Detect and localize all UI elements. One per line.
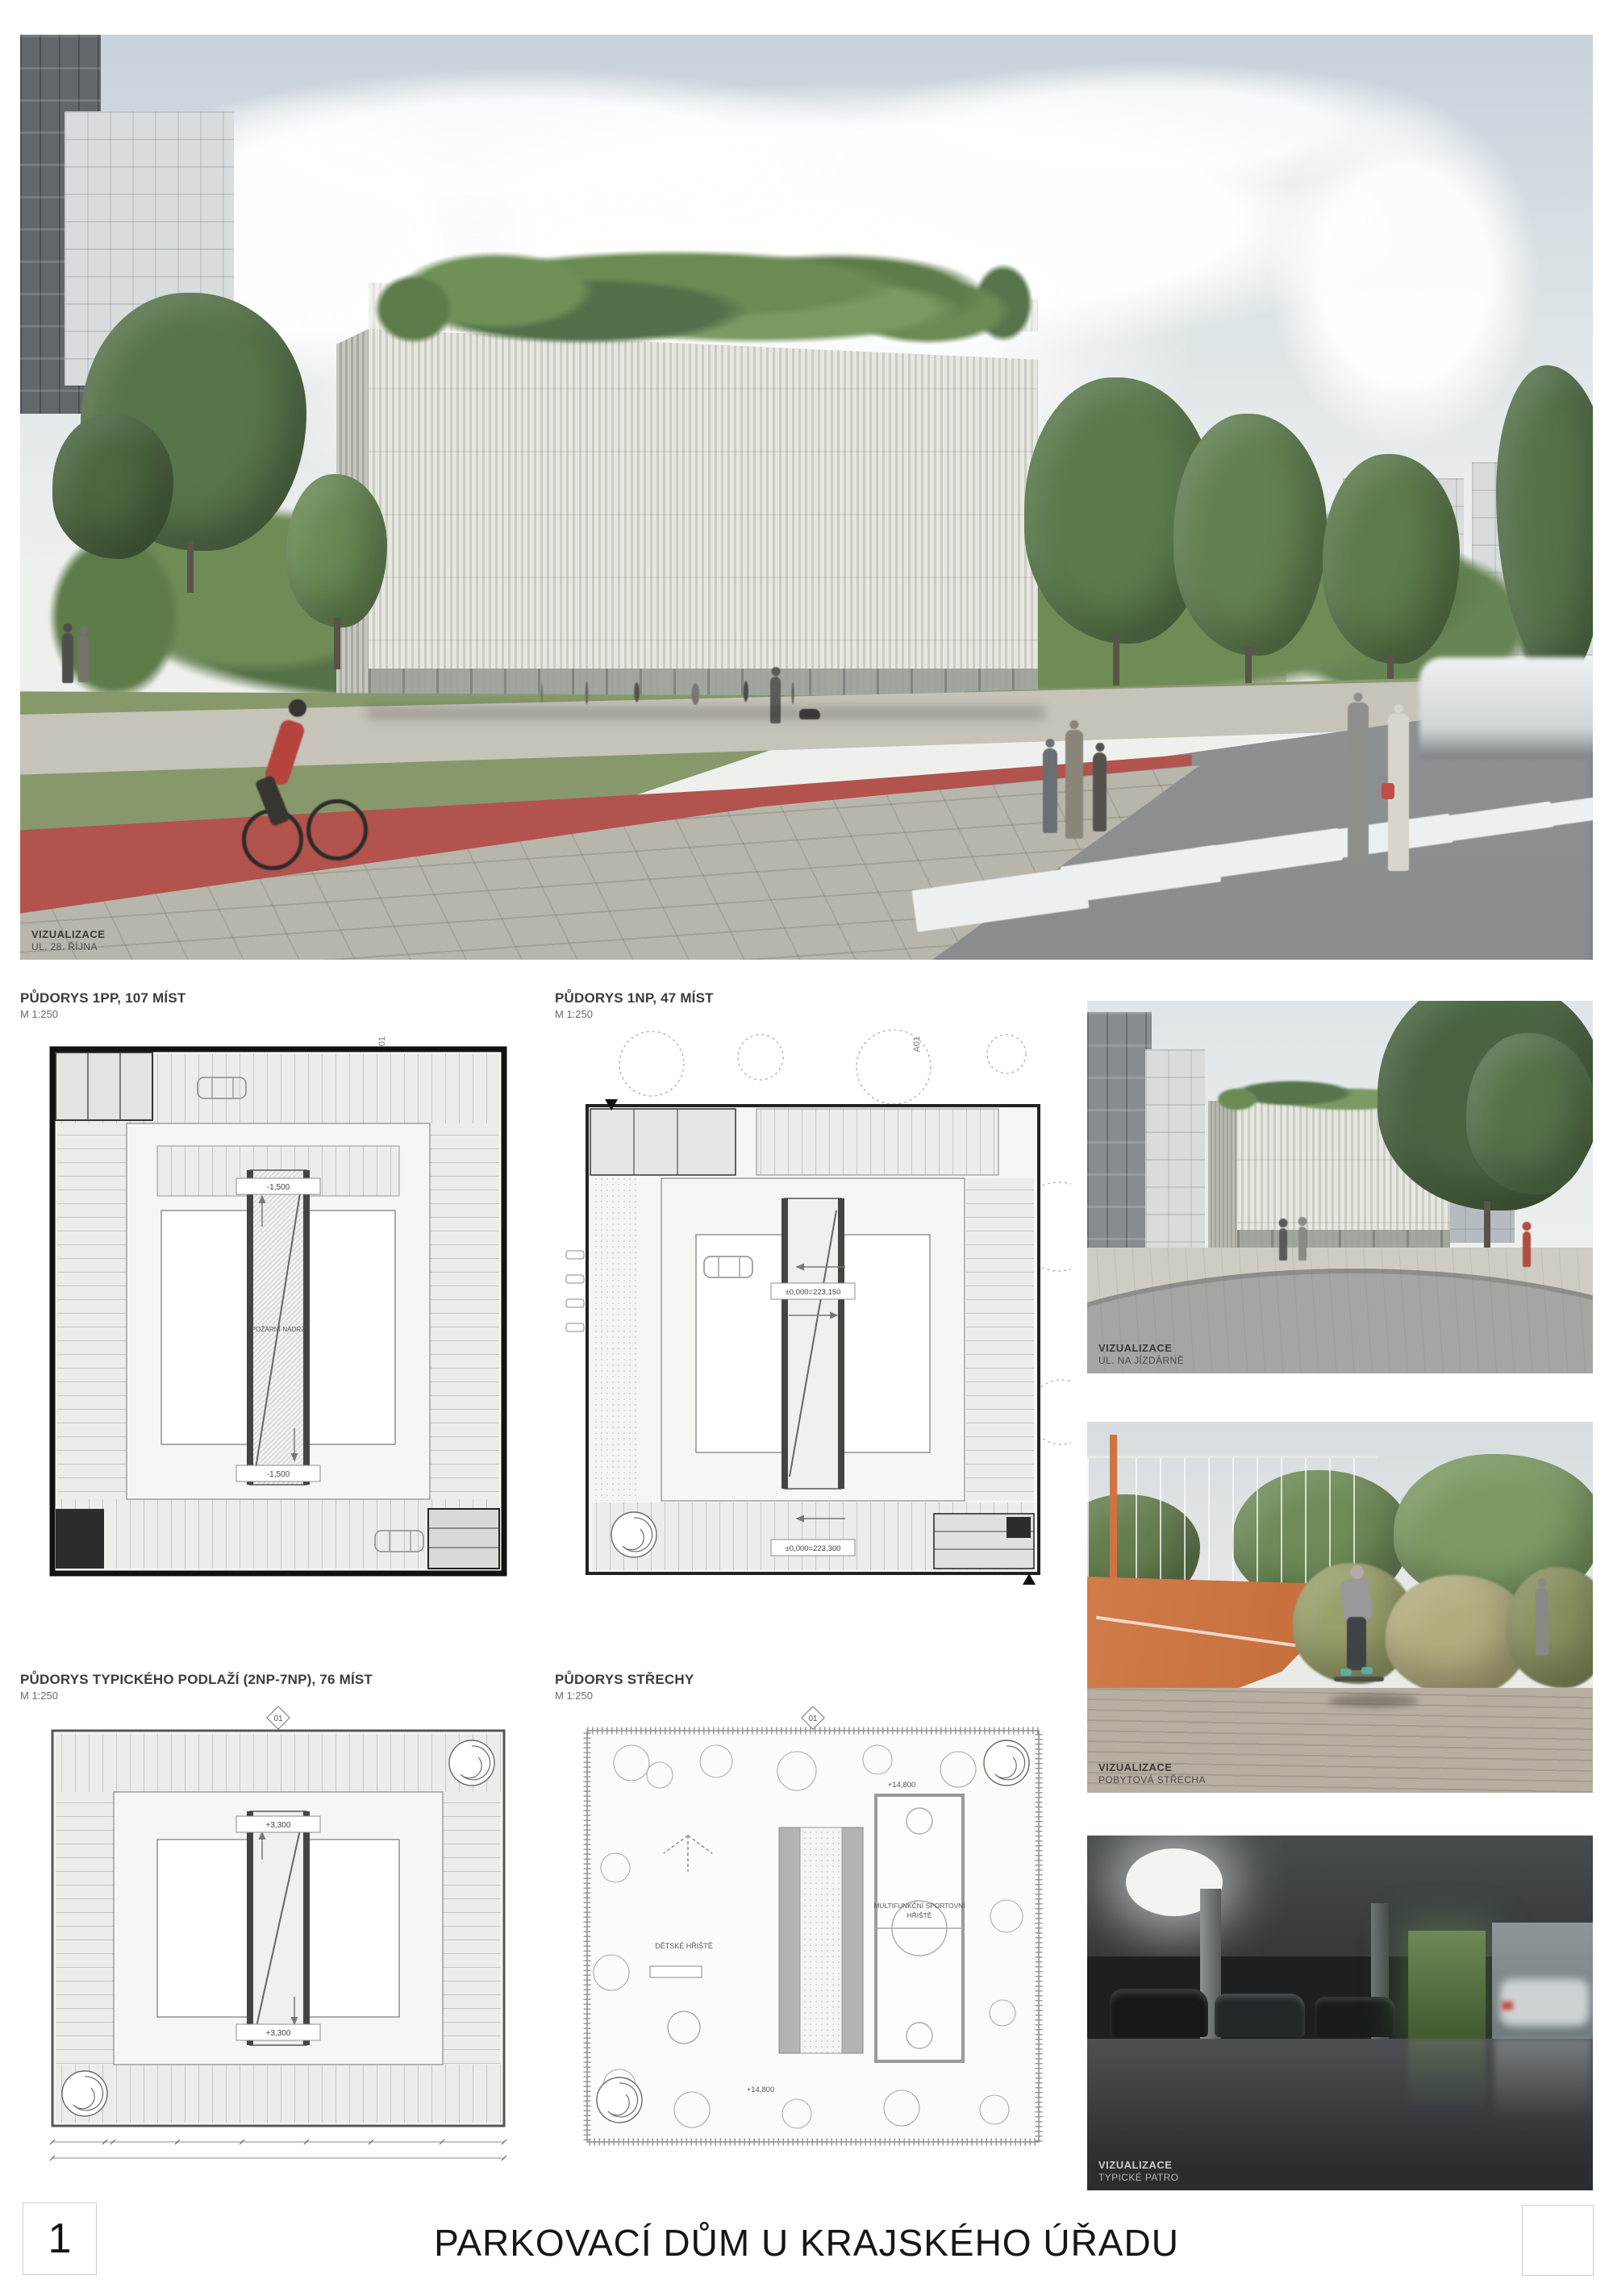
- tree: [1173, 414, 1327, 656]
- svg-text:±0,000=223,300: ±0,000=223,300: [786, 1544, 841, 1553]
- svg-text:+3,300: +3,300: [266, 1821, 291, 1830]
- plan-scale: M 1:250: [20, 1008, 536, 1020]
- cyclist: [226, 688, 363, 890]
- ramp-core: [781, 1198, 844, 1489]
- plan-typical-floor: PŮDORYS TYPICKÉHO PODLAŽÍ (2NP-7NP), 76 …: [20, 1672, 536, 2196]
- background-building: [1087, 1012, 1152, 1254]
- spiral-ramp: [62, 2071, 107, 2116]
- floor-reflection-green: [1408, 2039, 1486, 2111]
- sports-court: MULTIFUNKČNÍ SPORTOVNÍ HŘIŠTĚ: [873, 1795, 965, 2061]
- svg-text:01: 01: [273, 1715, 283, 1723]
- viz-caption: VIZUALIZACE UL. NA JÍZDÁRNĚ: [1098, 1342, 1184, 1367]
- presentation-board: VIZUALIZACE UL. 28. ŘÍJNA PŮDORYS 1PP, 1…: [0, 15, 1613, 2296]
- pedestrian: [1065, 730, 1083, 839]
- section-marker: 01: [267, 1706, 290, 1729]
- visualization-interior: VIZUALIZACE TYPICKÉ PATRO: [1087, 1836, 1593, 2190]
- plan-title: PŮDORYS STŘECHY: [555, 1672, 1071, 1688]
- level-label-bottom: +14,800: [747, 2086, 775, 2094]
- tree: [1466, 1033, 1593, 1194]
- dimension-line: [50, 2140, 506, 2161]
- context-bike-racks: [566, 1251, 584, 1331]
- stair-rooms: [934, 1514, 1034, 1569]
- hero-visualization: VIZUALIZACE UL. 28. ŘÍJNA: [20, 35, 1593, 960]
- plan-drawing-typical: 01 +3,300: [20, 1706, 536, 2168]
- parking-house-building: [336, 325, 1038, 710]
- board-title: PARKOVACÍ DŮM U KRAJSKÉHO ÚŘADU: [0, 2221, 1613, 2265]
- entrance-rooms: [590, 1109, 998, 1175]
- playground-label: DĚTSKÉ HŘIŠTĚ: [655, 1942, 713, 1950]
- svg-text:+3,300: +3,300: [266, 2029, 291, 2038]
- caption-label: VIZUALIZACE: [31, 928, 105, 941]
- viz-caption: VIZUALIZACE TYPICKÉ PATRO: [1098, 2159, 1178, 2184]
- spiral-ramp: [984, 1740, 1029, 1786]
- entrance-people: [536, 669, 811, 710]
- ramp-core: [247, 1811, 310, 2045]
- car-blurred: [1419, 657, 1593, 758]
- background-building: [1145, 1049, 1205, 1252]
- level-marker-bottom: +3,300: [236, 2024, 320, 2040]
- moving-car-blur: [1500, 1979, 1589, 2026]
- tree: [286, 474, 387, 627]
- caption-location: UL. 28. ŘÍJNA: [31, 941, 105, 953]
- level-label-top: +14,800: [888, 1781, 916, 1790]
- pedestrian-child: [1043, 748, 1057, 833]
- axis-marker-label: A01: [912, 1036, 922, 1052]
- visualization-roof-terrace: VIZUALIZACE POBYTOVÁ STŘECHA: [1087, 1422, 1593, 1793]
- parked-car: [1215, 1994, 1305, 2037]
- building-shadow: [367, 706, 1044, 719]
- court-label-line2: HŘIŠTĚ: [907, 1911, 932, 1919]
- svg-text:-1,500: -1,500: [267, 1183, 290, 1192]
- entry-triangle-bottom: [1023, 1573, 1036, 1585]
- plan-scale: M 1:250: [555, 1690, 1071, 1702]
- parked-car: [1110, 1989, 1208, 2037]
- level-marker-top: +3,300: [236, 1816, 320, 1832]
- plan-1np: PŮDORYS 1NP, 47 MÍST M 1:250 A01: [555, 990, 1071, 1668]
- plan-roof: PŮDORYS STŘECHY M 1:250 01: [555, 1672, 1071, 2196]
- plan-drawing-1pp: A01 POŽÁRNÍ NÁDRŽ: [20, 1025, 536, 1640]
- plan-drawing-1np: A01: [555, 1025, 1071, 1640]
- pedestrian: [78, 635, 89, 682]
- spiral-ramp: [449, 1740, 494, 1786]
- spiral-ramp: [611, 1512, 656, 1557]
- stamp-box-empty: [1522, 2205, 1594, 2276]
- plan-scale: M 1:250: [20, 1690, 536, 1702]
- level-marker-top: ±0,000=223,150: [771, 1283, 855, 1299]
- parked-car: [1315, 1997, 1395, 2037]
- roof-garden-trees: [359, 236, 1044, 357]
- level-marker-bottom: ±0,000=223,300: [771, 1540, 855, 1556]
- red-bag: [1382, 783, 1394, 799]
- green-wall: [1408, 1931, 1486, 2039]
- building-front-face: [369, 325, 1038, 710]
- court-label-line1: MULTIFUNKČNÍ SPORTOVNÍ: [873, 1902, 965, 1910]
- visualization-street: VIZUALIZACE UL. NA JÍZDÁRNĚ: [1087, 1001, 1593, 1373]
- plan-1pp: PŮDORYS 1PP, 107 MÍST M 1:250 A01: [20, 990, 536, 1668]
- section-marker: 01: [802, 1706, 824, 1729]
- pedestrian: [1279, 1228, 1287, 1261]
- tree: [1323, 454, 1460, 664]
- plan-scale: M 1:250: [555, 1008, 1071, 1020]
- pedestrian: [1298, 1227, 1307, 1261]
- pedestrian: [62, 633, 73, 683]
- level-marker-top: -1,500: [236, 1178, 320, 1194]
- pedestrian: [1523, 1231, 1531, 1267]
- viz-caption: VIZUALIZACE POBYTOVÁ STŘECHA: [1098, 1761, 1206, 1786]
- plan-title: PŮDORYS TYPICKÉHO PODLAŽÍ (2NP-7NP), 76 …: [20, 1672, 536, 1688]
- ramp-core: POŽÁRNÍ NÁDRŽ: [247, 1170, 310, 1485]
- plan-title: PŮDORYS 1NP, 47 MÍST: [555, 990, 1071, 1006]
- pedestrian: [1348, 702, 1369, 864]
- level-marker-bottom: -1,500: [236, 1465, 320, 1481]
- pedestrian-child: [1093, 752, 1107, 831]
- floor-reflection-light: [1494, 2039, 1591, 2119]
- hero-caption: VIZUALIZACE UL. 28. ŘÍJNA: [31, 928, 105, 953]
- tree: [52, 414, 173, 559]
- svg-text:01: 01: [808, 1715, 818, 1723]
- plan-drawing-roof: 01: [555, 1706, 1071, 2168]
- pedestrian: [1536, 1588, 1548, 1656]
- room-label: POŽÁRNÍ NÁDRŽ: [252, 1325, 306, 1333]
- svg-text:±0,000=223,150: ±0,000=223,150: [786, 1288, 841, 1297]
- courtyard-voids: [779, 1827, 863, 2053]
- plan-title: PŮDORYS 1PP, 107 MÍST: [20, 990, 536, 1006]
- svg-text:-1,500: -1,500: [267, 1470, 290, 1479]
- spiral-ramp: [597, 2077, 642, 2123]
- taillight: [1502, 2002, 1513, 2010]
- skateboarding-kid: [1327, 1565, 1392, 1702]
